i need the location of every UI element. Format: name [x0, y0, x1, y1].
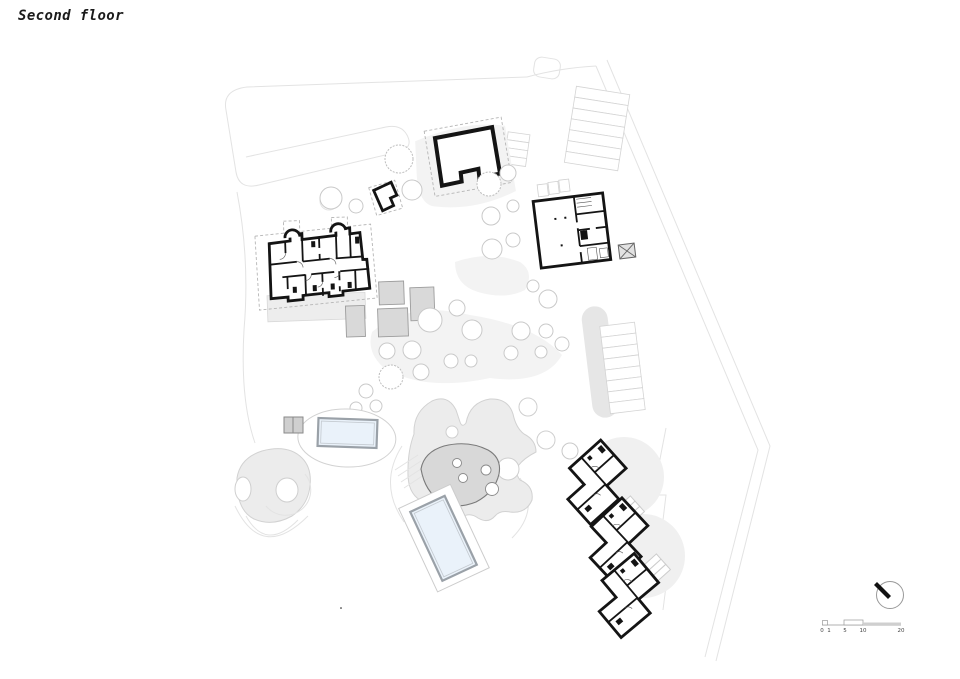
main-building-plan	[254, 214, 435, 341]
pond-mound	[235, 449, 311, 537]
site-plan-drawing: 0 1 5 10 20	[0, 0, 960, 679]
upper-pool	[297, 407, 397, 468]
scale-label: 5	[843, 628, 847, 634]
scale-label: 1	[827, 628, 831, 634]
annex-building	[369, 180, 403, 215]
scale-label: 0	[820, 628, 824, 634]
scale-label: 20	[898, 628, 905, 634]
pool-shed	[284, 417, 303, 433]
scale-bar: 0 1 5 10 20	[820, 620, 905, 634]
north-arrow-icon	[874, 582, 904, 609]
east-hall-building	[531, 175, 611, 268]
skylight-box	[618, 243, 636, 259]
floor-plan-sheet: Second floor	[0, 0, 960, 679]
scale-label: 10	[860, 628, 867, 634]
hall-building-outline	[412, 116, 517, 211]
parking-lot-north	[564, 86, 629, 170]
